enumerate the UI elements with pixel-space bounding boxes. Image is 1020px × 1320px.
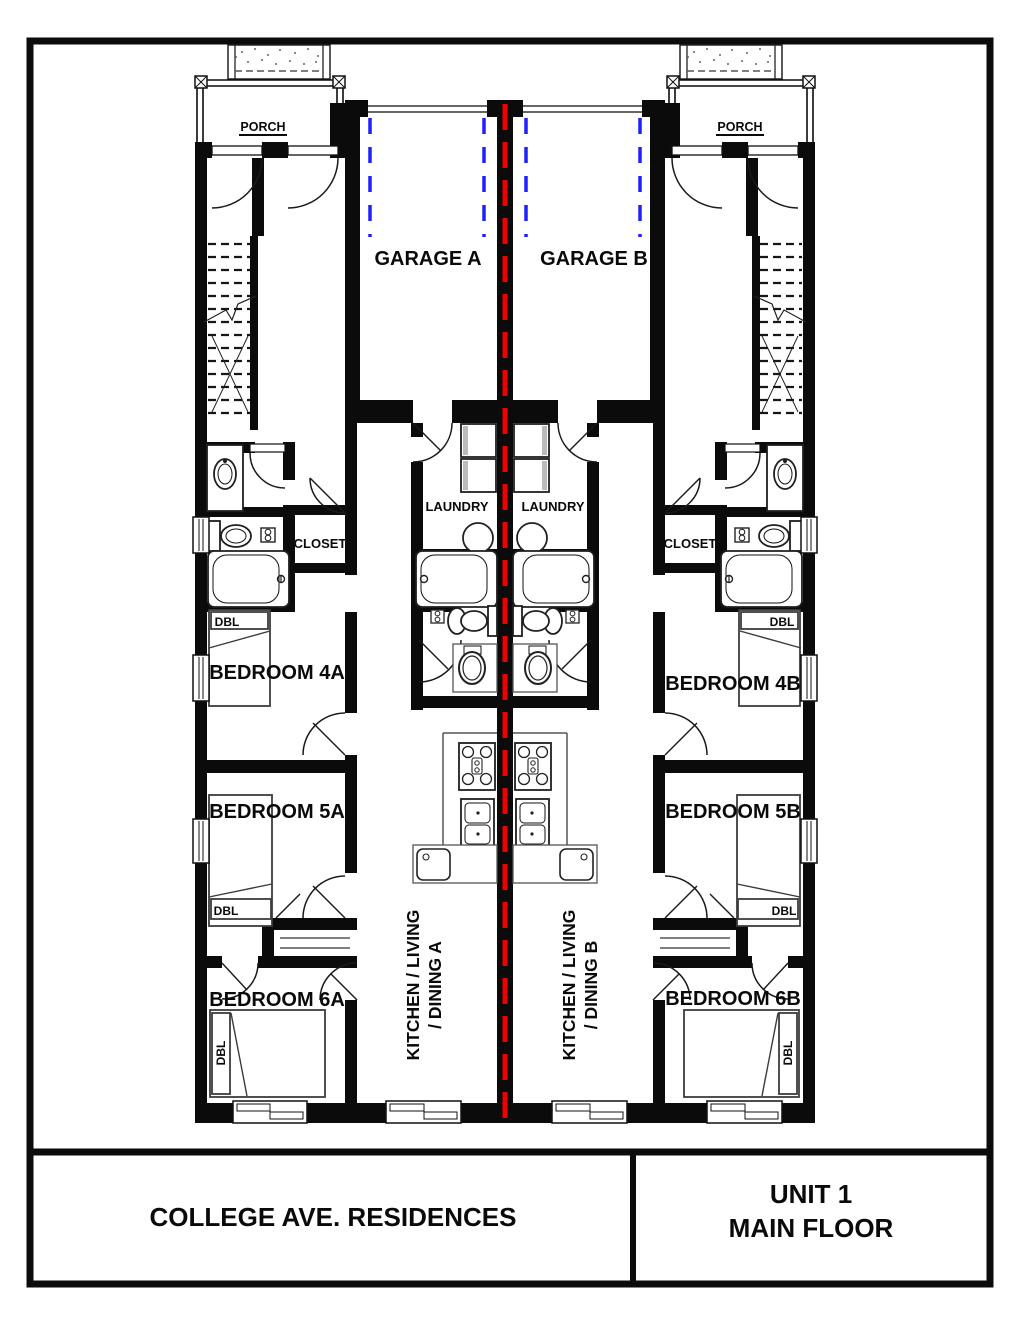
bathroom-left (207, 445, 289, 607)
floor-drain-icon (735, 528, 749, 542)
laundry-a (416, 424, 497, 692)
kitchen-a-label-line2: / DINING A (425, 941, 445, 1029)
kitchen-a (413, 733, 497, 883)
sheet-title-line2: MAIN FLOOR (729, 1213, 894, 1243)
bedroom-5a-label: BEDROOM 5A (209, 801, 345, 823)
kitchen-b-label-line2: / DINING B (581, 941, 601, 1029)
laundry-b-label: LAUNDRY (521, 499, 584, 514)
garage-door-left (368, 106, 487, 112)
closet-b-label: CLOSET (664, 536, 717, 551)
sheet-title-line1: UNIT 1 (770, 1179, 852, 1209)
stoop-left (228, 45, 330, 79)
stairs-left (204, 244, 256, 413)
garage-a-label: GARAGE A (374, 248, 481, 270)
bed-4a-dbl-tag: DBL (215, 615, 240, 629)
bedroom-4a-label: BEDROOM 4A (209, 662, 345, 684)
bedroom-4b-label: BEDROOM 4B (665, 673, 801, 695)
bed-6b-dbl-tag: DBL (781, 1041, 795, 1066)
floor-drain-icon (431, 610, 444, 623)
stairs-right (754, 244, 806, 413)
closet-a-label: CLOSET (294, 536, 347, 551)
kitchen-b-label-line1: KITCHEN / LIVING (559, 910, 579, 1061)
title-block: COLLEGE AVE. RESIDENCES UNIT 1 MAIN FLOO… (150, 1179, 894, 1243)
bathroom-right (721, 445, 803, 607)
bedroom-5b-label: BEDROOM 5B (665, 801, 801, 823)
bedroom-6a-label: BEDROOM 6A (209, 989, 345, 1011)
garage-door-right (523, 106, 642, 112)
bed-5b-dbl-tag: DBL (772, 904, 797, 918)
porch-right-label: PORCH (717, 120, 762, 134)
drawing-sheet: PORCH PORCH GARAGE A GARAGE B LAUNDRY LA… (0, 0, 1020, 1320)
floor-drain-icon (261, 528, 275, 542)
floor-plan-svg: PORCH PORCH GARAGE A GARAGE B LAUNDRY LA… (0, 0, 1020, 1320)
floor-drain-icon (566, 610, 579, 623)
project-title: COLLEGE AVE. RESIDENCES (150, 1202, 517, 1232)
laundry-a-label: LAUNDRY (425, 499, 488, 514)
bed-5a-dbl-tag: DBL (214, 904, 239, 918)
kitchen-b (513, 733, 597, 883)
bed-4b-dbl-tag: DBL (770, 615, 795, 629)
stoop-right (680, 45, 782, 79)
kitchen-a-label-line1: KITCHEN / LIVING (403, 910, 423, 1061)
bedroom-6b-label: BEDROOM 6B (665, 988, 801, 1010)
laundry-b (513, 424, 594, 692)
bed-6a-dbl-tag: DBL (214, 1041, 228, 1066)
porch-left-label: PORCH (240, 120, 285, 134)
garage-b-label: GARAGE B (540, 248, 648, 270)
